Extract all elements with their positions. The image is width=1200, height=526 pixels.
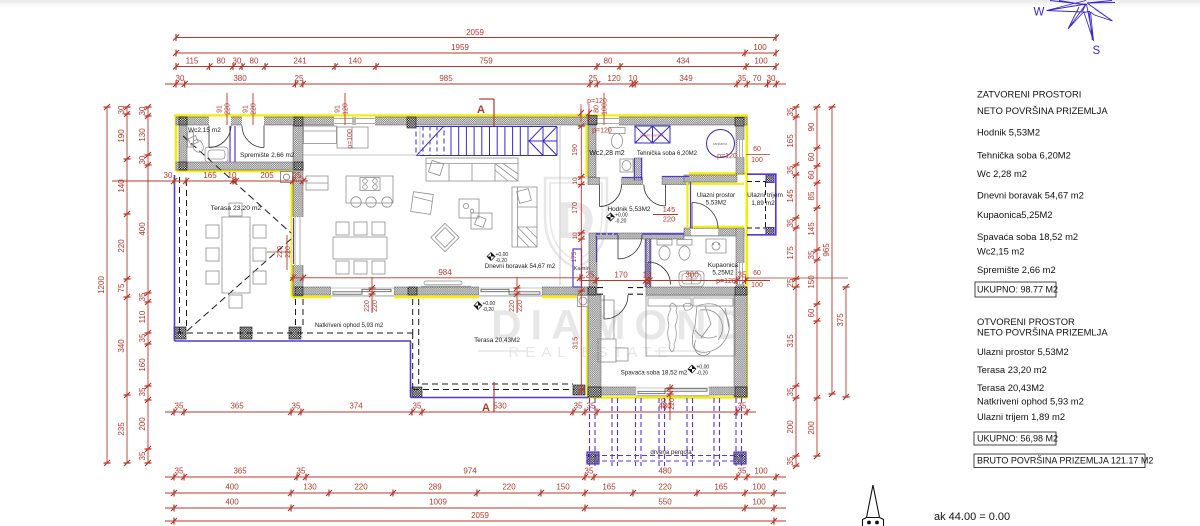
svg-text:289: 289 (428, 483, 442, 492)
svg-text:75: 75 (117, 283, 126, 292)
svg-text:145: 145 (786, 189, 795, 203)
svg-text:145: 145 (663, 205, 676, 214)
svg-text:200: 200 (807, 421, 816, 435)
svg-text:W: W (1034, 7, 1045, 19)
svg-text:60: 60 (807, 170, 816, 179)
svg-text:10: 10 (572, 177, 579, 185)
svg-text:p=120: p=120 (592, 128, 612, 135)
svg-text:170: 170 (614, 271, 628, 280)
svg-text:365: 365 (230, 402, 244, 411)
svg-text:220: 220 (661, 398, 668, 410)
svg-text:35: 35 (786, 107, 795, 116)
svg-text:Spremište 2,66 m2: Spremište 2,66 m2 (240, 152, 295, 159)
svg-text:140: 140 (348, 57, 362, 66)
svg-text:984: 984 (438, 268, 452, 277)
svg-text:160: 160 (138, 358, 147, 372)
svg-text:60: 60 (753, 146, 761, 153)
svg-text:1009: 1009 (429, 498, 447, 507)
svg-text:175: 175 (571, 251, 578, 262)
svg-text:10: 10 (629, 74, 638, 83)
svg-text:165: 165 (602, 483, 616, 492)
svg-text:Terasa 20,43M2: Terasa 20,43M2 (474, 337, 520, 344)
svg-text:Terasa 20,43M2: Terasa 20,43M2 (977, 382, 1044, 393)
svg-text:-0,20: -0,20 (697, 371, 709, 377)
svg-text:35: 35 (585, 467, 594, 476)
svg-text:10: 10 (643, 271, 652, 280)
svg-text:Natkriveni ophod 5,93 m2: Natkriveni ophod 5,93 m2 (977, 396, 1084, 407)
svg-text:340: 340 (117, 339, 126, 353)
svg-text:100: 100 (754, 57, 768, 66)
svg-text:120: 120 (343, 103, 350, 115)
svg-text:35: 35 (738, 74, 747, 83)
svg-text:Dnevni boravak 54,67 m2: Dnevni boravak 54,67 m2 (977, 190, 1084, 201)
svg-text:Ulazni prostor 5,53M2: Ulazni prostor 5,53M2 (977, 346, 1069, 357)
svg-text:UKUPNO: 56,98 M2: UKUPNO: 56,98 M2 (977, 434, 1058, 444)
svg-text:91: 91 (335, 105, 342, 113)
svg-text:30: 30 (176, 74, 185, 83)
svg-text:25: 25 (586, 271, 595, 280)
svg-text:Dnevni boravak 54,67 m2: Dnevni boravak 54,67 m2 (485, 263, 556, 270)
svg-text:480: 480 (658, 467, 672, 476)
svg-text:25: 25 (295, 74, 304, 83)
svg-text:30: 30 (138, 155, 147, 164)
svg-text:300: 300 (685, 271, 699, 280)
svg-text:30: 30 (767, 74, 776, 83)
svg-text:220: 220 (354, 483, 368, 492)
svg-text:985: 985 (439, 74, 453, 83)
svg-text:OTVORENI PROSTOR: OTVORENI PROSTOR (977, 316, 1075, 327)
svg-text:220: 220 (669, 398, 676, 410)
svg-text:220: 220 (502, 483, 516, 492)
svg-text:35: 35 (786, 387, 795, 396)
svg-text:Kupaonica: Kupaonica (708, 262, 739, 269)
svg-text:Kupaonica5,25M2: Kupaonica5,25M2 (977, 209, 1053, 220)
svg-text:91: 91 (217, 105, 224, 113)
svg-text:35: 35 (138, 451, 147, 460)
svg-text:315: 315 (571, 337, 580, 350)
svg-text:10: 10 (572, 232, 579, 240)
svg-text:315: 315 (786, 334, 795, 348)
svg-text:35: 35 (297, 467, 306, 476)
svg-text:BRUTO POVRŠINA PRIZEMLJA 121.: BRUTO POVRŠINA PRIZEMLJA 121.17 M2 (977, 456, 1153, 466)
svg-text:A: A (482, 402, 490, 414)
svg-text:35: 35 (413, 402, 422, 411)
svg-text:1,89 m2: 1,89 m2 (751, 200, 775, 207)
svg-text:Spavaća soba 18,52 m2: Spavaća soba 18,52 m2 (977, 231, 1078, 242)
svg-text:550: 550 (658, 498, 672, 507)
svg-text:5,25M2: 5,25M2 (712, 270, 734, 277)
svg-text:375: 375 (836, 313, 845, 327)
svg-text:DIAMOND: DIAMOND (491, 301, 755, 348)
svg-text:2059: 2059 (466, 28, 484, 37)
svg-text:NETO POVRŠINA PRIZEMLJA: NETO POVRŠINA PRIZEMLJA (977, 105, 1108, 116)
svg-text:35: 35 (138, 387, 147, 396)
svg-text:85: 85 (807, 191, 816, 200)
svg-text:60: 60 (807, 152, 816, 161)
svg-text:35: 35 (738, 402, 747, 411)
svg-text:190: 190 (117, 129, 126, 143)
svg-text:Tehnička soba 6,20M2: Tehnička soba 6,20M2 (637, 151, 698, 157)
svg-text:Terasa 23,20 m2: Terasa 23,20 m2 (977, 364, 1047, 375)
svg-text:60: 60 (807, 308, 816, 317)
svg-text:80: 80 (594, 105, 601, 113)
svg-text:100: 100 (751, 157, 763, 164)
svg-text:220: 220 (517, 300, 524, 312)
svg-text:30: 30 (138, 106, 147, 115)
svg-text:530: 530 (493, 402, 507, 411)
svg-text:35: 35 (175, 467, 184, 476)
svg-text:759: 759 (479, 57, 493, 66)
svg-text:120: 120 (607, 74, 621, 83)
svg-text:35: 35 (807, 250, 816, 259)
svg-text:80: 80 (217, 57, 226, 66)
svg-text:p=120: p=120 (717, 153, 737, 160)
svg-text:25: 25 (293, 171, 302, 180)
svg-text:115: 115 (186, 57, 199, 66)
svg-text:100: 100 (751, 282, 763, 289)
svg-text:165: 165 (714, 483, 728, 492)
svg-text:100: 100 (752, 498, 766, 507)
svg-text:145: 145 (807, 222, 816, 236)
svg-text:30: 30 (233, 57, 242, 66)
svg-text:175: 175 (786, 246, 795, 260)
svg-text:70: 70 (753, 74, 762, 83)
svg-text:220: 220 (364, 300, 371, 312)
svg-text:965: 965 (822, 243, 831, 257)
svg-text:205: 205 (260, 171, 274, 180)
svg-text:25: 25 (589, 74, 598, 83)
svg-text:380: 380 (233, 74, 247, 83)
svg-text:Ulazni trijem: Ulazni trijem (747, 192, 783, 199)
svg-text:30: 30 (117, 105, 126, 114)
svg-text:200: 200 (786, 420, 795, 434)
svg-text:-0,20: -0,20 (615, 219, 627, 225)
svg-text:NETO POVRŠINA PRIZEMLJA: NETO POVRŠINA PRIZEMLJA (977, 327, 1108, 338)
svg-text:220: 220 (251, 103, 258, 115)
svg-text:Wc2,15 m2: Wc2,15 m2 (977, 246, 1024, 257)
svg-text:-0,20: -0,20 (483, 307, 495, 313)
svg-text:150: 150 (556, 483, 570, 492)
svg-text:220: 220 (225, 103, 232, 115)
svg-text:p=120: p=120 (716, 278, 736, 285)
svg-text:100: 100 (752, 483, 766, 492)
svg-text:35: 35 (738, 271, 747, 280)
svg-text:35: 35 (138, 333, 147, 342)
svg-text:80: 80 (250, 57, 259, 66)
svg-text:-0,20: -0,20 (496, 258, 508, 264)
svg-text:Tehnička soba 6,20M2: Tehnička soba 6,20M2 (977, 150, 1071, 161)
svg-text:349: 349 (679, 74, 693, 83)
svg-text:sanitarna: sanitarna (713, 142, 727, 146)
svg-text:35: 35 (786, 218, 795, 227)
svg-text:220: 220 (372, 300, 379, 312)
svg-text:35: 35 (786, 165, 795, 174)
svg-text:35: 35 (138, 292, 147, 301)
svg-text:Wc2,28 m2: Wc2,28 m2 (589, 150, 625, 157)
svg-text:30: 30 (164, 171, 173, 180)
svg-text:220: 220 (509, 300, 516, 312)
svg-text:110: 110 (138, 310, 147, 323)
svg-text:434: 434 (676, 57, 690, 66)
svg-text:170: 170 (572, 202, 579, 214)
svg-text:p=100: p=100 (347, 129, 354, 149)
svg-text:80: 80 (604, 57, 613, 66)
svg-text:200: 200 (138, 417, 147, 431)
svg-text:25: 25 (786, 278, 795, 287)
svg-text:165: 165 (786, 134, 795, 148)
svg-text:Ulazni trijem 1,89 m2: Ulazni trijem 1,89 m2 (977, 411, 1065, 422)
svg-text:ak 44.00 = 0.00: ak 44.00 = 0.00 (934, 511, 1010, 523)
svg-text:220: 220 (663, 215, 676, 224)
svg-text:S: S (1093, 45, 1101, 57)
svg-text:35: 35 (587, 402, 596, 411)
svg-text:1959: 1959 (451, 43, 469, 52)
svg-text:235: 235 (117, 422, 126, 436)
svg-text:60: 60 (753, 270, 761, 277)
svg-text:220: 220 (658, 483, 672, 492)
svg-text:35: 35 (175, 402, 184, 411)
svg-text:100: 100 (754, 467, 768, 476)
svg-text:374: 374 (349, 402, 363, 411)
svg-text:Terasa 23,20 m2: Terasa 23,20 m2 (211, 205, 262, 212)
svg-text:35: 35 (738, 467, 747, 476)
svg-text:2059: 2059 (471, 511, 489, 520)
svg-text:35: 35 (292, 402, 301, 411)
svg-text:130: 130 (303, 483, 317, 492)
svg-text:UKUPNO: 98.77 M2: UKUPNO: 98.77 M2 (977, 285, 1058, 295)
svg-text:Spavaća soba 18,52 m2: Spavaća soba 18,52 m2 (621, 370, 688, 377)
svg-text:35: 35 (786, 456, 795, 465)
svg-text:Wc 2,28 m2: Wc 2,28 m2 (977, 168, 1027, 179)
svg-text:35: 35 (574, 402, 583, 411)
svg-text:drvena pergola: drvena pergola (650, 449, 692, 456)
svg-text:ZATVORENI PROSTORI: ZATVORENI PROSTORI (977, 89, 1081, 100)
svg-text:400: 400 (225, 483, 239, 492)
svg-text:solarni spremnik: solarni spremnik (640, 134, 664, 138)
svg-text:150: 150 (807, 275, 816, 289)
svg-text:974: 974 (463, 467, 477, 476)
svg-text:Hodnik 5,53M2: Hodnik 5,53M2 (977, 127, 1040, 138)
svg-text:90: 90 (807, 122, 816, 131)
svg-text:A: A (477, 104, 485, 116)
svg-text:100: 100 (753, 43, 767, 52)
svg-text:Ulazni prostor: Ulazni prostor (697, 192, 735, 199)
svg-text:1200: 1200 (97, 276, 106, 294)
svg-text:5,53M2: 5,53M2 (706, 200, 727, 207)
svg-text:Wc2,15 m2: Wc2,15 m2 (188, 127, 221, 134)
svg-text:220: 220 (117, 239, 126, 253)
svg-text:165: 165 (203, 171, 217, 180)
svg-text:10: 10 (228, 171, 237, 180)
svg-text:Natkriveni ophod 5,93 m2: Natkriveni ophod 5,93 m2 (315, 323, 384, 329)
svg-text:130: 130 (138, 128, 147, 142)
svg-text:91: 91 (243, 105, 250, 113)
svg-text:400: 400 (138, 222, 147, 236)
svg-text:241: 241 (293, 57, 307, 66)
svg-text:190: 190 (572, 144, 579, 156)
svg-text:p=120: p=120 (587, 98, 607, 105)
svg-text:Spremište 2,66 m2: Spremište 2,66 m2 (977, 264, 1056, 275)
svg-text:365: 365 (233, 467, 247, 476)
svg-text:400: 400 (225, 498, 239, 507)
